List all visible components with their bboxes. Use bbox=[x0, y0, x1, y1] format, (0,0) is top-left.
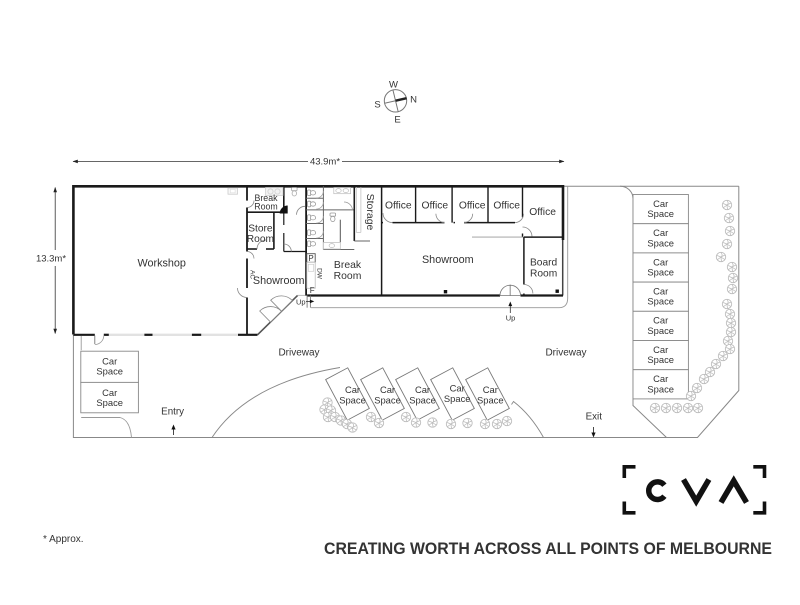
svg-text:Space: Space bbox=[647, 383, 674, 394]
svg-text:Board: Board bbox=[530, 257, 558, 268]
svg-text:Storage: Storage bbox=[364, 194, 376, 231]
svg-text:Space: Space bbox=[444, 393, 471, 404]
svg-text:Room: Room bbox=[254, 202, 277, 212]
svg-text:Space: Space bbox=[647, 208, 674, 219]
svg-text:F: F bbox=[310, 286, 315, 295]
svg-text:43.9m*: 43.9m* bbox=[310, 157, 340, 168]
svg-text:Showroom: Showroom bbox=[253, 275, 305, 287]
svg-text:Driveway: Driveway bbox=[545, 347, 586, 358]
svg-text:Space: Space bbox=[409, 394, 436, 405]
svg-text:Up: Up bbox=[296, 297, 306, 306]
svg-text:N: N bbox=[410, 95, 417, 106]
svg-text:Room: Room bbox=[247, 234, 274, 245]
svg-text:Space: Space bbox=[647, 354, 674, 365]
svg-text:Office: Office bbox=[421, 200, 448, 211]
svg-text:Room: Room bbox=[530, 268, 557, 279]
svg-text:Space: Space bbox=[477, 394, 504, 405]
svg-text:Space: Space bbox=[374, 394, 401, 405]
svg-text:Office: Office bbox=[385, 200, 412, 211]
svg-text:Showroom: Showroom bbox=[422, 254, 474, 266]
svg-text:Room: Room bbox=[334, 271, 362, 282]
svg-text:Entry: Entry bbox=[161, 406, 184, 417]
svg-text:Office: Office bbox=[459, 200, 486, 211]
svg-text:S: S bbox=[374, 100, 380, 111]
svg-text:Break: Break bbox=[334, 260, 362, 271]
svg-text:W: W bbox=[389, 80, 398, 91]
svg-text:CREATING WORTH ACROSS ALL POIN: CREATING WORTH ACROSS ALL POINTS OF MELB… bbox=[324, 539, 772, 558]
svg-text:DW: DW bbox=[316, 268, 323, 280]
svg-text:Office: Office bbox=[493, 200, 520, 211]
svg-text:Space: Space bbox=[647, 296, 674, 307]
svg-text:Space: Space bbox=[96, 397, 123, 408]
svg-text:Exit: Exit bbox=[586, 411, 603, 422]
svg-text:Workshop: Workshop bbox=[137, 258, 185, 270]
svg-text:E: E bbox=[394, 115, 400, 126]
svg-text:Space: Space bbox=[647, 325, 674, 336]
svg-text:Space: Space bbox=[647, 267, 674, 278]
svg-text:Space: Space bbox=[647, 237, 674, 248]
svg-text:Store: Store bbox=[248, 223, 273, 234]
svg-text:* Approx.: * Approx. bbox=[43, 534, 84, 545]
svg-text:P: P bbox=[308, 254, 313, 263]
svg-text:Driveway: Driveway bbox=[278, 347, 319, 358]
svg-text:13.3m*: 13.3m* bbox=[36, 254, 66, 265]
svg-text:Space: Space bbox=[96, 366, 123, 377]
svg-text:Space: Space bbox=[339, 394, 366, 405]
svg-text:Office: Office bbox=[529, 207, 556, 218]
svg-text:Up: Up bbox=[506, 314, 516, 323]
